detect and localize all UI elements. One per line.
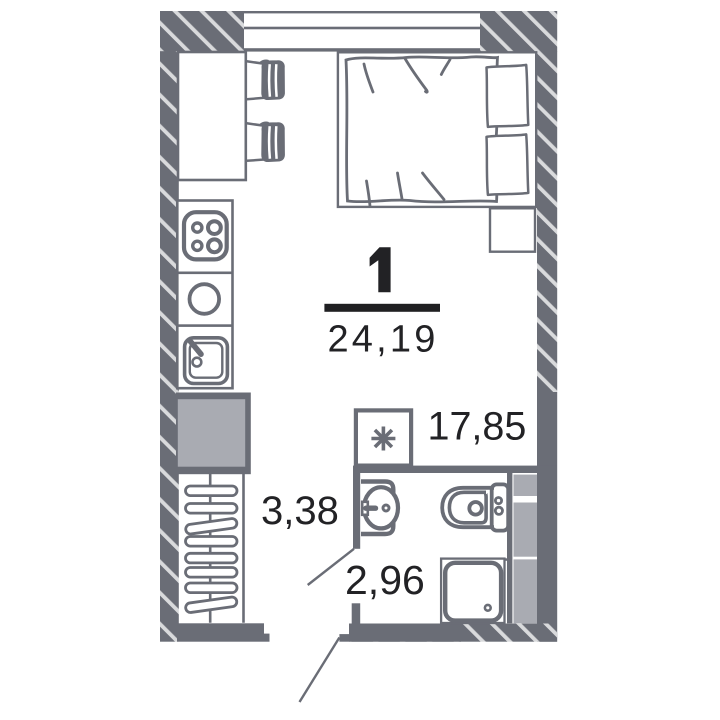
svg-text:17,85: 17,85 — [428, 405, 527, 449]
svg-text:2,96: 2,96 — [345, 557, 425, 603]
svg-text:3,38: 3,38 — [261, 489, 339, 533]
svg-text:24,19: 24,19 — [327, 319, 438, 361]
